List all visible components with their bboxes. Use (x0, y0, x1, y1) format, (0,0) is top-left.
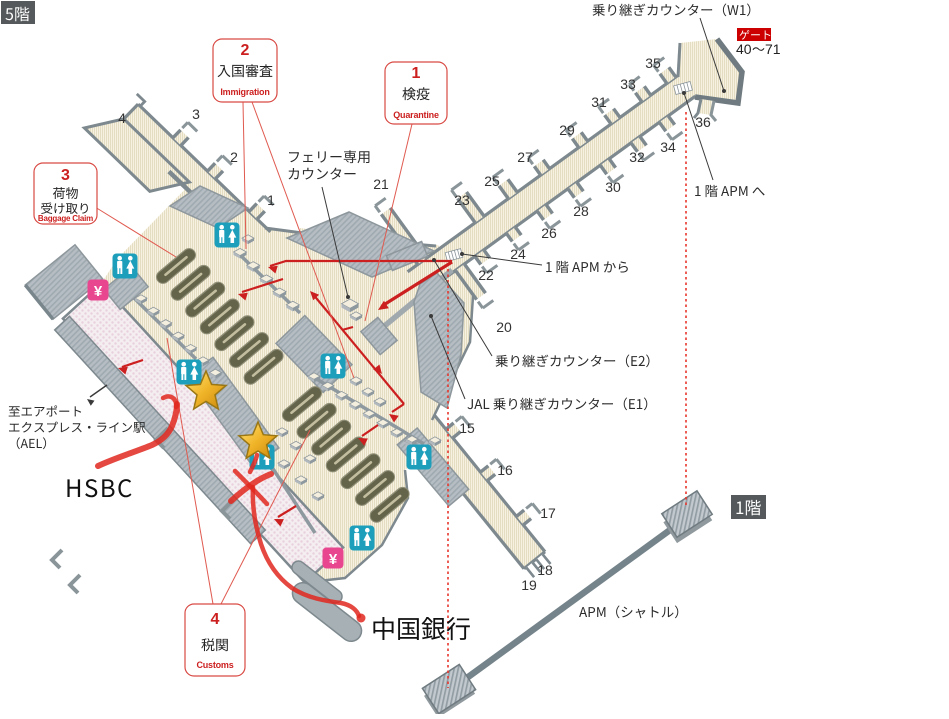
svg-text:16: 16 (497, 462, 513, 478)
svg-text:1: 1 (267, 192, 275, 208)
svg-text:4: 4 (118, 110, 126, 126)
svg-text:71: 71 (765, 41, 781, 57)
svg-text:15: 15 (459, 420, 475, 436)
svg-text:35: 35 (645, 55, 661, 71)
svg-text:22: 22 (478, 267, 494, 283)
svg-text:34: 34 (660, 139, 676, 155)
svg-text:26: 26 (541, 225, 557, 241)
svg-text:31: 31 (591, 94, 607, 110)
svg-text:Baggage Claim: Baggage Claim (38, 214, 93, 223)
svg-text:Customs: Customs (196, 660, 233, 670)
svg-text:¥: ¥ (329, 551, 338, 568)
svg-text:20: 20 (496, 319, 512, 335)
svg-text:40: 40 (736, 41, 752, 57)
svg-text:33: 33 (620, 76, 636, 92)
svg-text:25: 25 (484, 173, 500, 189)
svg-text:21: 21 (373, 176, 389, 192)
svg-text:¥: ¥ (94, 283, 103, 300)
svg-text:32: 32 (629, 149, 645, 165)
svg-text:Immigration: Immigration (220, 87, 269, 97)
svg-text:36: 36 (695, 114, 711, 130)
svg-text:17: 17 (540, 505, 556, 521)
svg-text:23: 23 (454, 192, 470, 208)
svg-text:3: 3 (192, 106, 200, 122)
svg-text:2: 2 (230, 149, 238, 165)
svg-text:29: 29 (559, 122, 575, 138)
svg-text:3: 3 (61, 167, 70, 184)
svg-text:24: 24 (510, 246, 526, 262)
svg-text:4: 4 (211, 611, 220, 628)
svg-text:18: 18 (537, 562, 553, 578)
svg-text:28: 28 (573, 203, 589, 219)
svg-text:27: 27 (517, 149, 533, 165)
svg-text:30: 30 (605, 179, 621, 195)
svg-text:19: 19 (521, 577, 537, 593)
svg-text:1: 1 (412, 65, 421, 82)
svg-text:2: 2 (241, 42, 250, 59)
svg-text:Quarantine: Quarantine (393, 110, 439, 120)
